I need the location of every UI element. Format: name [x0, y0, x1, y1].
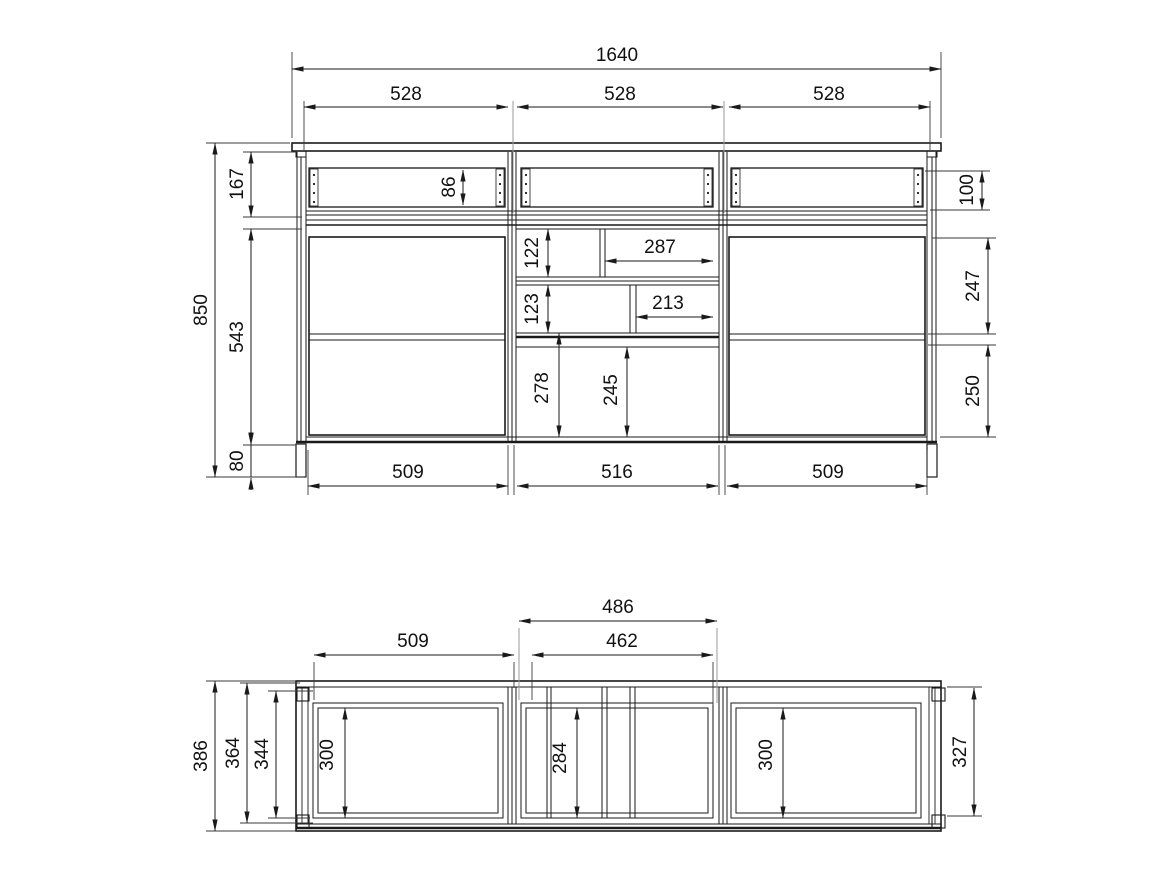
- dim-plan-center-inner: 462: [606, 631, 638, 652]
- center-niches: [516, 229, 719, 347]
- dim-front-row1-width: 287: [644, 237, 676, 258]
- plan-dimensions: 509 486 462 386 364 344 327 300 284 300: [191, 597, 982, 831]
- dim-front-bay1: 528: [390, 84, 422, 105]
- drawer-front-left: [309, 168, 505, 207]
- dim-front-drawer-zone: 167: [227, 168, 248, 200]
- plan-opening-left: [313, 703, 503, 818]
- dim-plan-center-outer: 486: [602, 597, 634, 618]
- drawer-rails: [306, 211, 927, 220]
- dim-plan-left-clear: 300: [317, 739, 338, 771]
- dim-front-open-left: 509: [392, 462, 424, 483]
- drawing-canvas: 1640 528 528 528 850 167 543 80 86 100 2…: [0, 0, 1163, 872]
- dim-front-open-right: 509: [812, 462, 844, 483]
- dim-plan-left-width: 509: [397, 631, 429, 652]
- plan-view: [296, 681, 945, 831]
- door-panel-right: [729, 237, 925, 435]
- dim-front-open-center: 516: [601, 462, 633, 483]
- dim-front-bay2: 528: [604, 84, 636, 105]
- foot-bottom-left: [297, 815, 309, 828]
- dim-front-plinth: 80: [227, 450, 248, 471]
- front-view: [292, 143, 941, 477]
- foot-bottom-right: [932, 815, 945, 828]
- dim-front-total-height: 850: [191, 294, 212, 326]
- technical-drawing-page: 1640 528 528 528 850 167 543 80 86 100 2…: [0, 0, 1163, 872]
- foot-top-right: [932, 688, 945, 701]
- dim-front-right-lower: 250: [963, 375, 984, 407]
- front-dimensions: 1640 528 528 528 850 167 543 80 86 100 2…: [191, 45, 996, 495]
- dim-plan-total-depth: 386: [191, 740, 212, 772]
- dim-front-right-upper: 247: [963, 270, 984, 302]
- dim-plan-inner-depth: 364: [223, 737, 244, 769]
- dim-plan-center-clear: 284: [550, 742, 571, 774]
- dim-front-row2-width: 213: [652, 293, 684, 314]
- dim-front-right-drawer: 100: [957, 174, 978, 206]
- drawer-front-center: [521, 168, 713, 207]
- leg-left: [296, 444, 306, 477]
- top-panel: [292, 143, 941, 151]
- dim-front-lower-clear: 245: [601, 374, 622, 406]
- dim-plan-frame-depth: 344: [252, 738, 273, 770]
- dim-front-bay3: 528: [813, 84, 845, 105]
- dim-front-row2-height: 123: [522, 293, 543, 325]
- dim-plan-right-depth: 327: [950, 736, 971, 768]
- leg-right: [927, 444, 937, 477]
- dim-front-drawer-front: 86: [439, 176, 460, 197]
- dim-front-row1-height: 122: [522, 237, 543, 269]
- dim-front-lower-niche: 278: [532, 372, 553, 404]
- dim-front-total-width: 1640: [596, 45, 638, 66]
- dim-plan-right-clear: 300: [756, 739, 777, 771]
- dim-front-door-zone: 543: [227, 321, 248, 353]
- foot-top-left: [297, 688, 309, 701]
- door-panel-left: [309, 237, 505, 435]
- drawer-front-right: [731, 168, 923, 207]
